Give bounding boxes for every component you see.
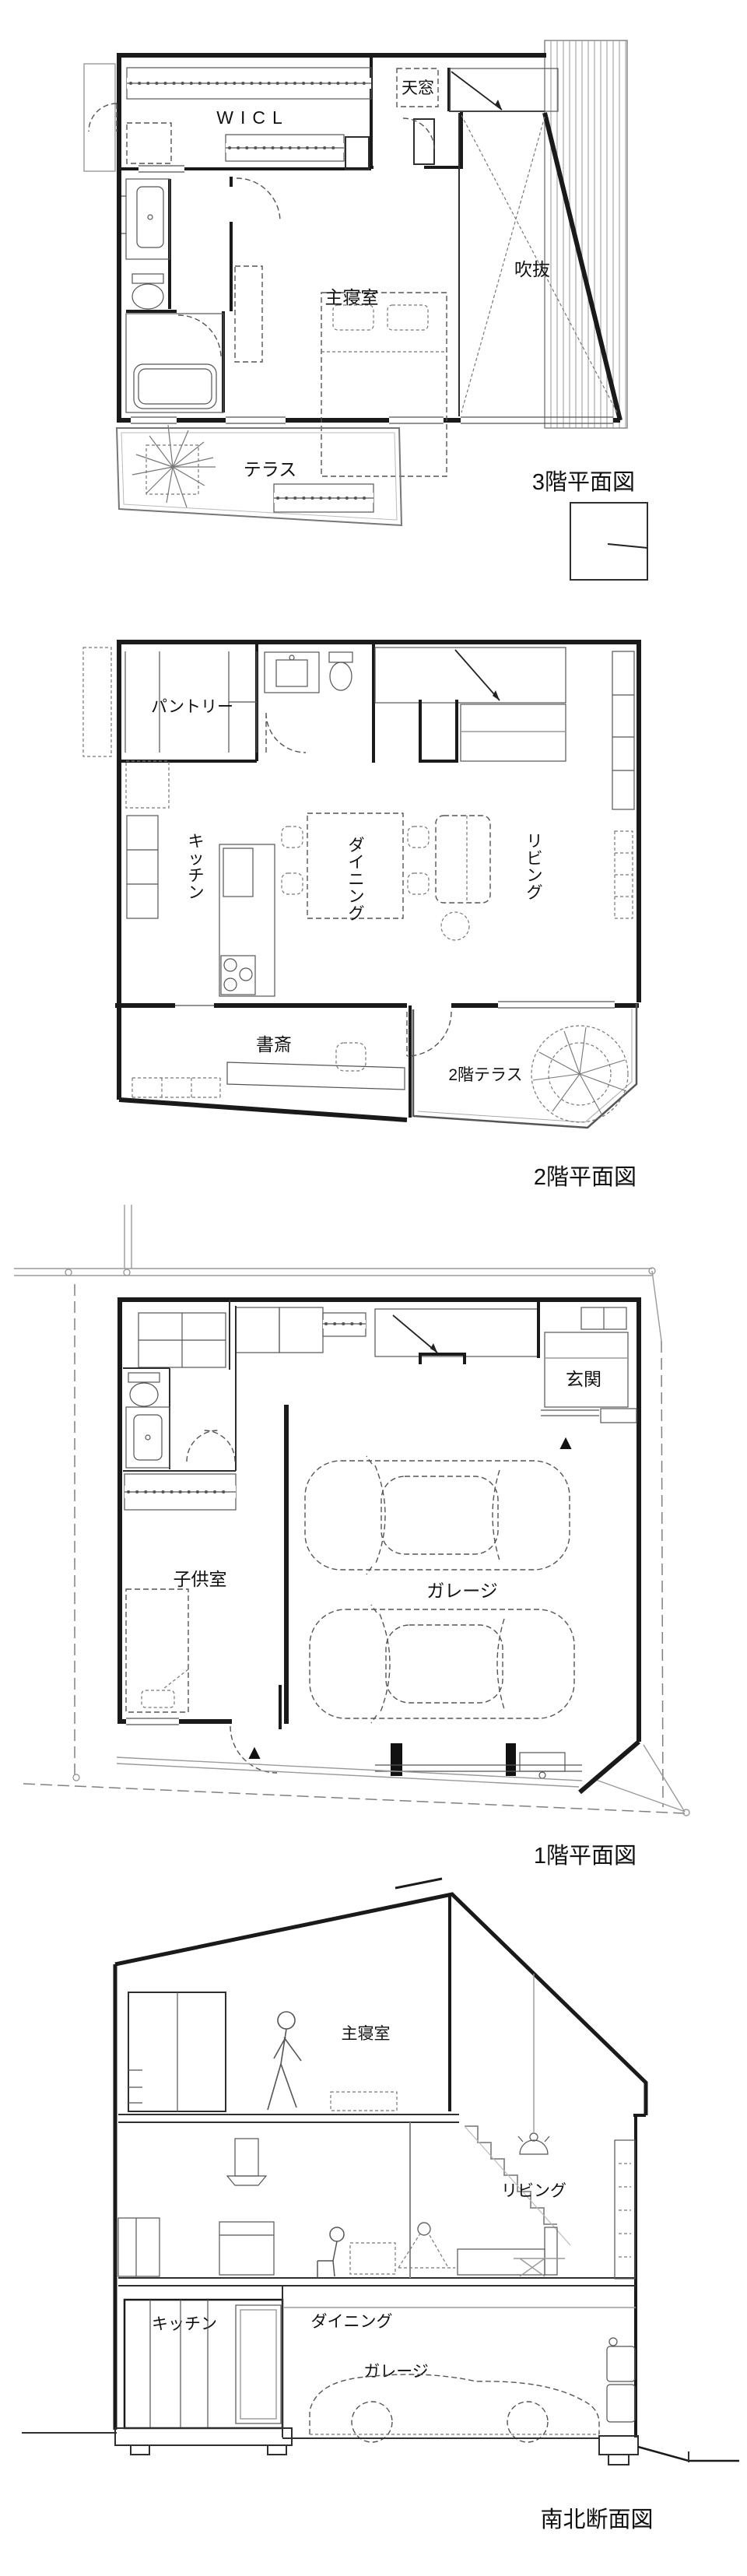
floor3-plan: WICL 天窓	[84, 40, 647, 580]
storage	[279, 1307, 323, 1353]
washbasin-1f	[126, 1407, 170, 1468]
foundation	[22, 2428, 739, 2465]
terrace-2f: 2階テラス	[407, 1004, 637, 1128]
water-heater	[607, 2338, 635, 2422]
room-label-pantry: パントリー	[151, 698, 233, 716]
deck-louver-band	[545, 40, 627, 428]
floor1-title: 1階平面図	[534, 1844, 637, 1869]
dresser	[127, 123, 171, 163]
room-label-dining: ダイニング	[349, 837, 365, 923]
wardrobe	[235, 266, 262, 362]
closet-rack	[127, 68, 371, 99]
sec-label-garage: ガレージ	[363, 2363, 429, 2381]
toilet	[132, 274, 163, 309]
closet-rack	[323, 1313, 366, 1336]
toilet-1f	[128, 1373, 160, 1406]
room-label-wicl: WICL	[216, 107, 289, 128]
living-shelf	[615, 2140, 635, 2279]
tree-icon	[531, 1026, 628, 1122]
range-hood	[227, 2139, 266, 2185]
exterior-ledge	[84, 64, 115, 171]
service-entrance-marker-icon: ▲	[244, 1740, 265, 1764]
car-2	[310, 1605, 574, 1723]
garage: ガレージ ▲	[117, 1456, 582, 1787]
section-2f: キッチン ダイニング リビング	[118, 2122, 635, 2333]
floor2-title: 2階平面図	[534, 1165, 637, 1190]
floor3-title: 3階平面図	[532, 470, 635, 495]
architectural-drawing-sheet: WICL 天窓	[0, 0, 747, 2576]
overhang-outline	[83, 648, 111, 756]
floor2-plan: パントリー	[83, 642, 641, 1190]
sofa-set	[436, 816, 490, 940]
car-side-icon	[310, 2374, 599, 2442]
room-label-master-bedroom: 主寝室	[325, 287, 379, 307]
wall-stub	[345, 137, 369, 170]
recliner-person-icon	[398, 2223, 455, 2268]
roof-skylight	[395, 1879, 442, 1888]
washbasin-2f	[265, 652, 319, 693]
bookshelf	[132, 1078, 220, 1097]
closet-sliding	[139, 1313, 226, 1367]
toilet-2f	[329, 652, 352, 690]
entrance-area: 玄関 ▲	[541, 1307, 637, 1454]
room-label-living: リビング	[527, 833, 543, 902]
stove	[221, 956, 255, 995]
section-1f: ガレージ	[124, 2286, 636, 2442]
room-label-skylight: 天窓	[402, 79, 434, 97]
key-plan-box	[570, 503, 647, 580]
floor1-plan: 子供室 玄関 ▲ ガレージ	[14, 1205, 689, 1869]
door-arcs	[187, 1430, 235, 1462]
section-title: 南北断面図	[540, 2507, 653, 2532]
drying-rack	[274, 484, 373, 512]
bed-kids	[126, 1589, 188, 1712]
room-label-void: 吹抜	[514, 259, 550, 279]
floor3-slab	[118, 2114, 459, 2122]
room-label-study: 書斎	[256, 1034, 292, 1055]
stairs-2f	[375, 648, 566, 761]
door-arc	[403, 118, 434, 149]
stairs	[450, 68, 558, 111]
car-1	[305, 1456, 570, 1574]
stairs-1f	[375, 1309, 538, 1364]
wall-storage	[612, 651, 634, 918]
shutter-box	[520, 1753, 565, 1771]
closet-rack	[226, 135, 344, 161]
door-arc	[237, 178, 280, 222]
shaft	[414, 119, 434, 164]
sec-label-living: リビング	[501, 2182, 566, 2200]
sec-label-dining: ダイニング	[311, 2313, 393, 2331]
entrance-marker-icon: ▲	[556, 1430, 576, 1454]
pendant-light-icon	[518, 1974, 549, 2154]
closet-rack	[124, 1474, 236, 1510]
room-label-terrace: テラス	[244, 459, 297, 479]
room-label-kids: 子供室	[174, 1569, 227, 1589]
dining-table-section	[350, 2243, 395, 2274]
section-3f: 主寝室	[128, 1992, 397, 2111]
room-label-terrace2f: 2階テラス	[448, 1066, 522, 1084]
room-label-kitchen: キッチン	[188, 833, 205, 902]
person-sitting-icon	[317, 2227, 344, 2278]
sofa-section	[458, 2227, 565, 2276]
storage	[236, 1307, 279, 1353]
door-arc	[266, 713, 306, 753]
property-boundary	[23, 1284, 689, 1816]
room-label-entrance: 玄関	[566, 1369, 601, 1389]
sec-label-master-bedroom: 主寝室	[342, 2025, 391, 2043]
door-arc	[89, 104, 117, 132]
room-label-garage: ガレージ	[426, 1581, 498, 1601]
floor2-slab	[118, 2278, 636, 2286]
drawings-svg: WICL 天窓	[0, 0, 747, 2576]
section-drawing: 主寝室 キッチン ダイニング	[22, 1879, 739, 2532]
washbasin	[121, 179, 170, 259]
terrace-3f: テラス	[117, 425, 402, 525]
bed	[321, 293, 447, 476]
bed-section	[331, 2092, 397, 2111]
person-walking-icon	[268, 2012, 301, 2110]
tree-icon	[132, 425, 216, 507]
door-arc	[178, 315, 221, 358]
